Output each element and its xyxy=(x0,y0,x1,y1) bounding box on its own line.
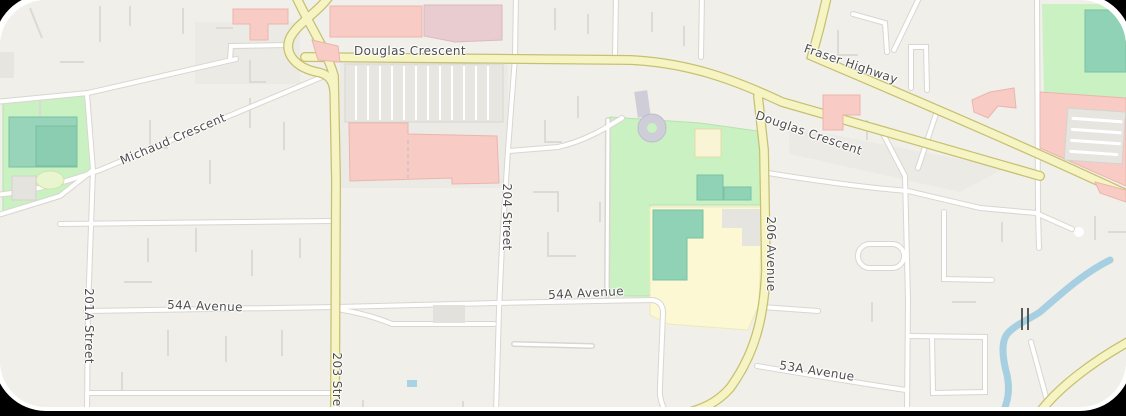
school-building xyxy=(36,126,77,166)
playground xyxy=(36,171,64,189)
cream-building xyxy=(695,129,721,157)
commercial-building xyxy=(330,6,422,37)
west-park-parking xyxy=(12,176,36,200)
swimming-pool xyxy=(407,380,417,387)
map-widget: Michaud Crescent Douglas Crescent Fraser… xyxy=(0,0,1126,416)
map-tiles xyxy=(0,0,1126,407)
map-canvas[interactable]: Michaud Crescent Douglas Crescent Fraser… xyxy=(0,0,1126,407)
small-buildings xyxy=(433,305,465,323)
school-building xyxy=(724,187,751,200)
mall-parking-lot xyxy=(345,64,503,122)
northeast-parking-lot xyxy=(1064,108,1125,164)
school-building xyxy=(697,175,723,200)
commercial-building-alt xyxy=(424,5,502,42)
land-parcel xyxy=(0,52,14,78)
